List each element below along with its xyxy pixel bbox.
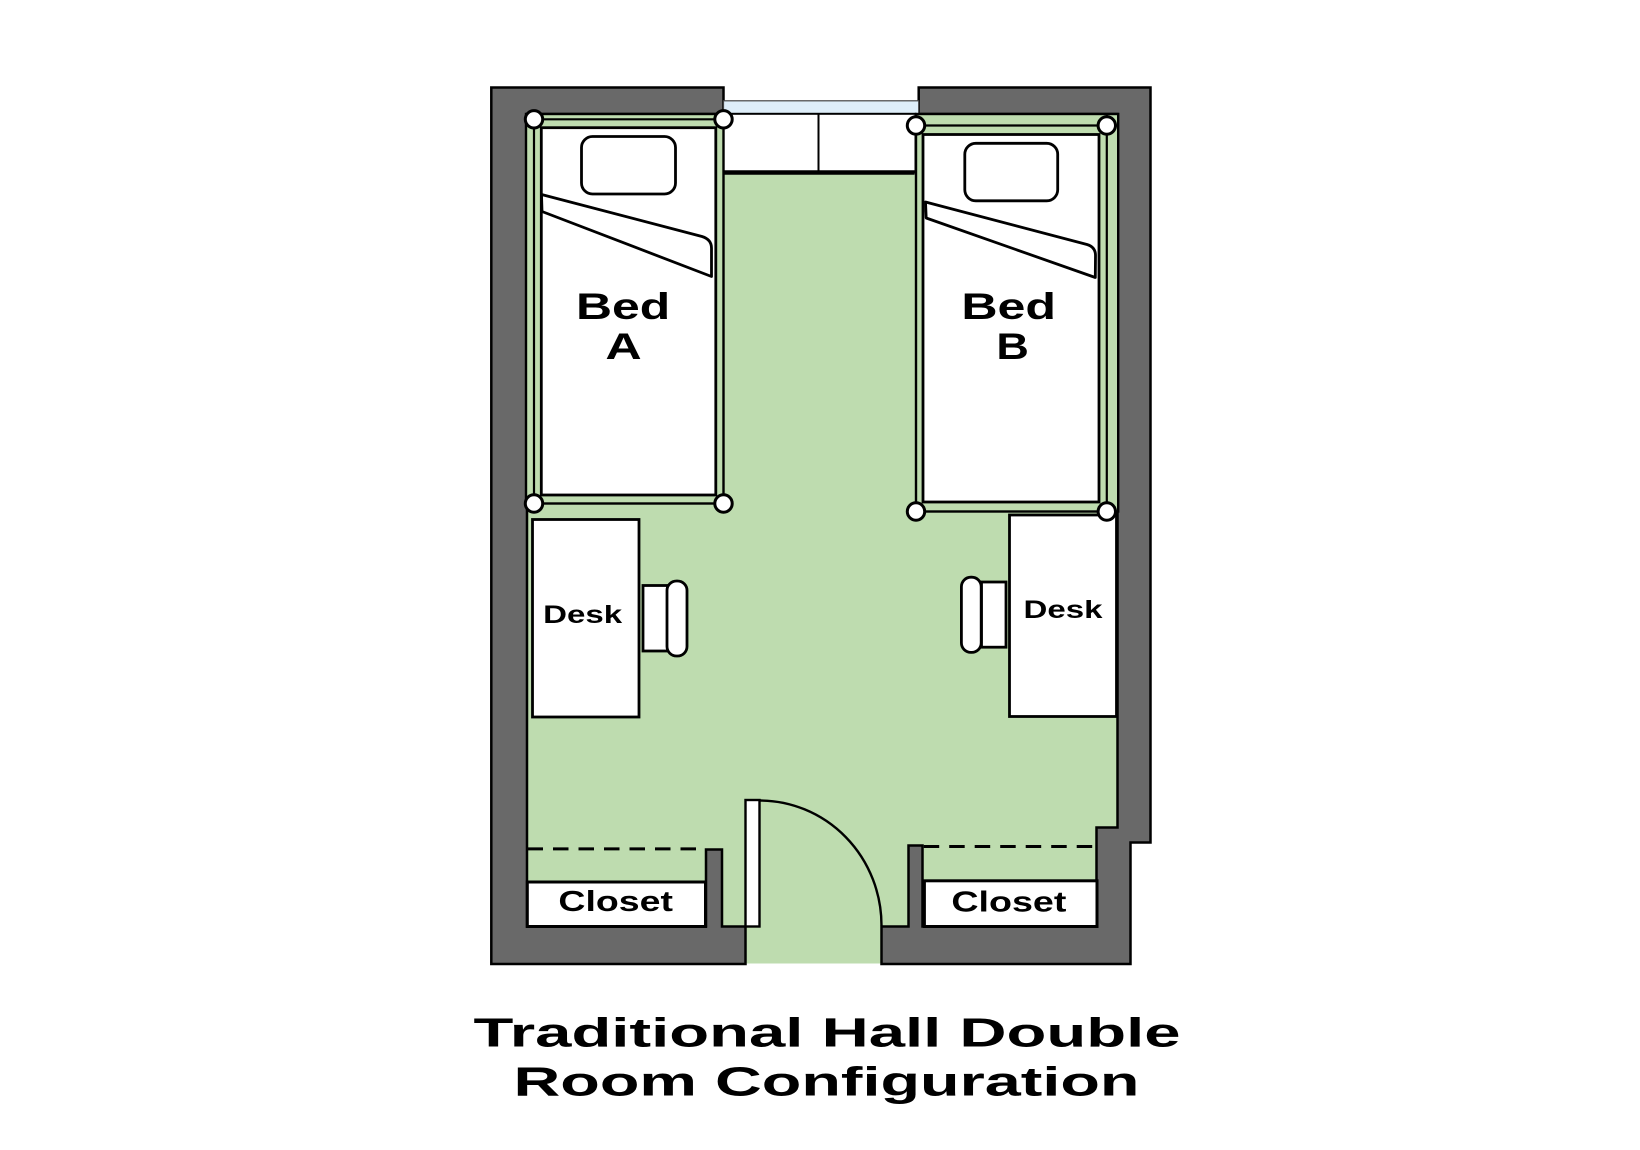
- svg-text:Desk: Desk: [543, 602, 622, 629]
- svg-text:Closet: Closet: [558, 886, 673, 918]
- svg-text:A: A: [605, 326, 641, 367]
- svg-text:Closet: Closet: [951, 886, 1067, 918]
- svg-text:Desk: Desk: [1024, 597, 1103, 624]
- svg-text:B: B: [996, 326, 1029, 367]
- svg-text:Bed: Bed: [576, 286, 670, 327]
- svg-text:Bed: Bed: [961, 286, 1056, 327]
- svg-text:Traditional Hall Double: Traditional Hall Double: [474, 1010, 1181, 1056]
- svg-text:Room Configuration: Room Configuration: [514, 1059, 1140, 1105]
